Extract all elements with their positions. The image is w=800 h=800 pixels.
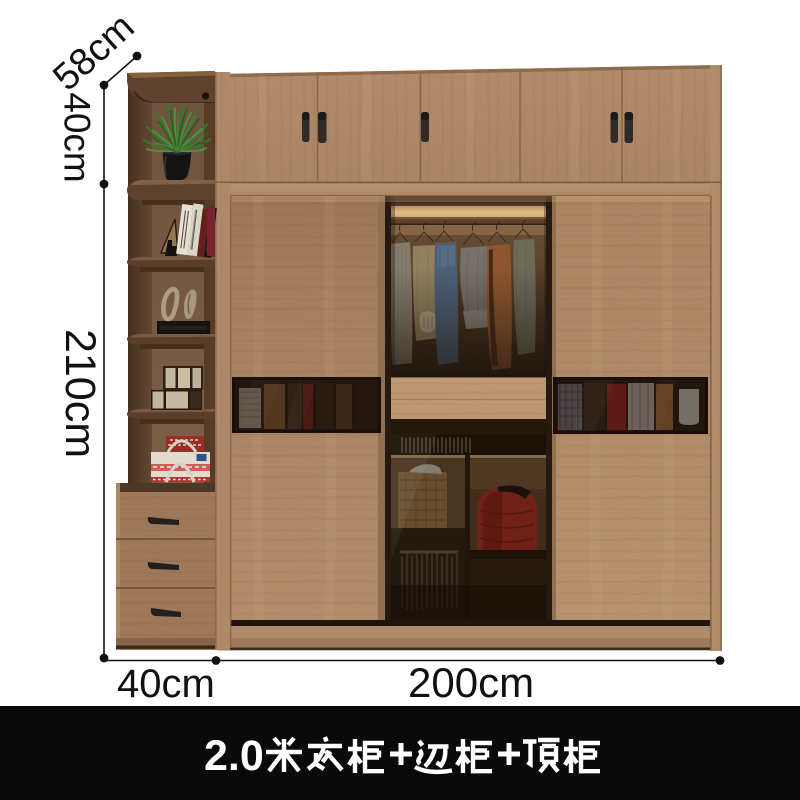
svg-text:2.0: 2.0	[204, 732, 264, 780]
svg-text:40cm: 40cm	[117, 662, 215, 706]
svg-text:210cm: 210cm	[56, 329, 104, 458]
svg-text:40cm: 40cm	[57, 92, 98, 182]
svg-text:200cm: 200cm	[408, 659, 534, 706]
